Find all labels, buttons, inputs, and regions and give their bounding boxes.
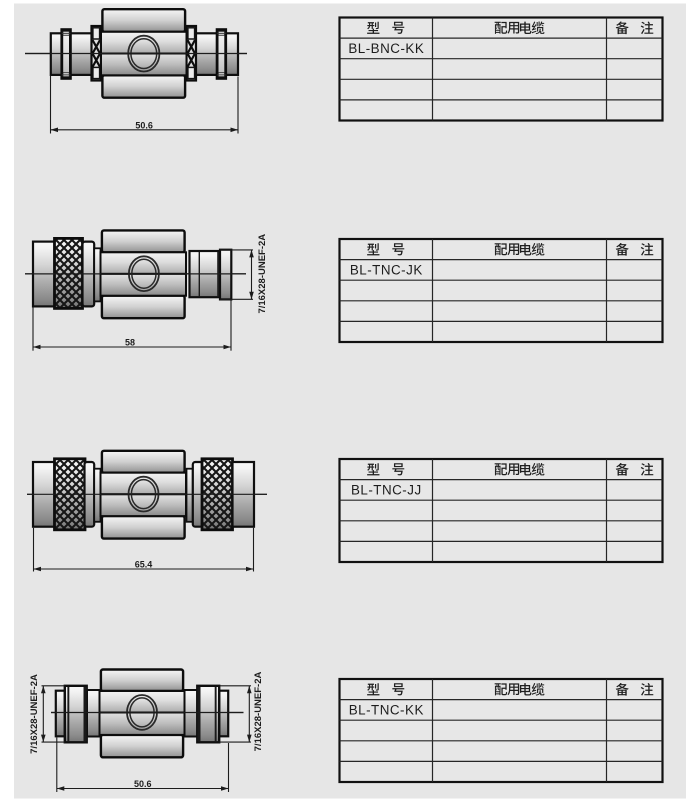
svg-text:7/16X28-UNEF-2A: 7/16X28-UNEF-2A xyxy=(29,674,40,754)
svg-text:BL-TNC-JK: BL-TNC-JK xyxy=(350,263,423,278)
svg-text:50.6: 50.6 xyxy=(135,120,153,130)
svg-text:65.4: 65.4 xyxy=(135,560,153,570)
svg-text:BL-TNC-JJ: BL-TNC-JJ xyxy=(351,483,422,498)
svg-text:50.6: 50.6 xyxy=(134,779,152,789)
svg-text:7/16X28-UNEF-2A: 7/16X28-UNEF-2A xyxy=(257,234,268,314)
svg-text:58: 58 xyxy=(125,338,135,348)
svg-text:7/16X28-UNEF-2A: 7/16X28-UNEF-2A xyxy=(253,672,264,752)
svg-text:BL-BNC-KK: BL-BNC-KK xyxy=(348,41,424,56)
svg-text:BL-TNC-KK: BL-TNC-KK xyxy=(349,703,424,718)
